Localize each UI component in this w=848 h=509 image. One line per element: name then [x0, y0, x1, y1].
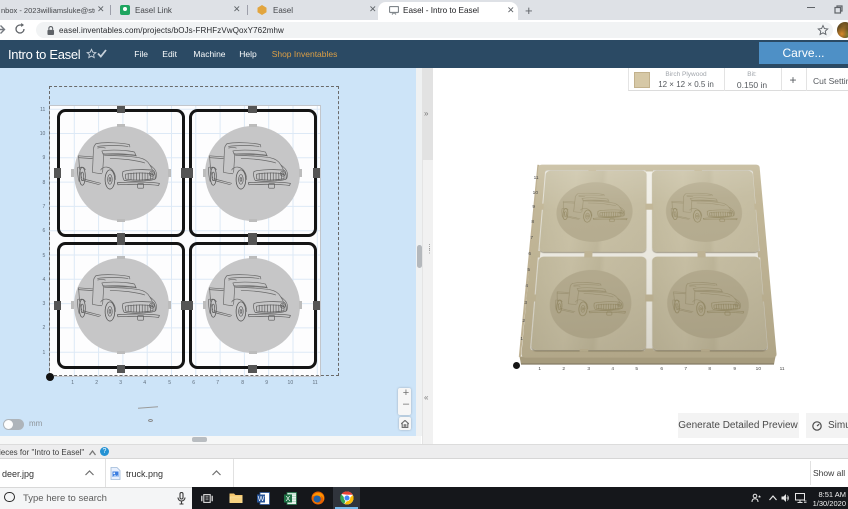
svg-text:W: W [258, 496, 265, 503]
svg-text:X: X [286, 496, 291, 503]
